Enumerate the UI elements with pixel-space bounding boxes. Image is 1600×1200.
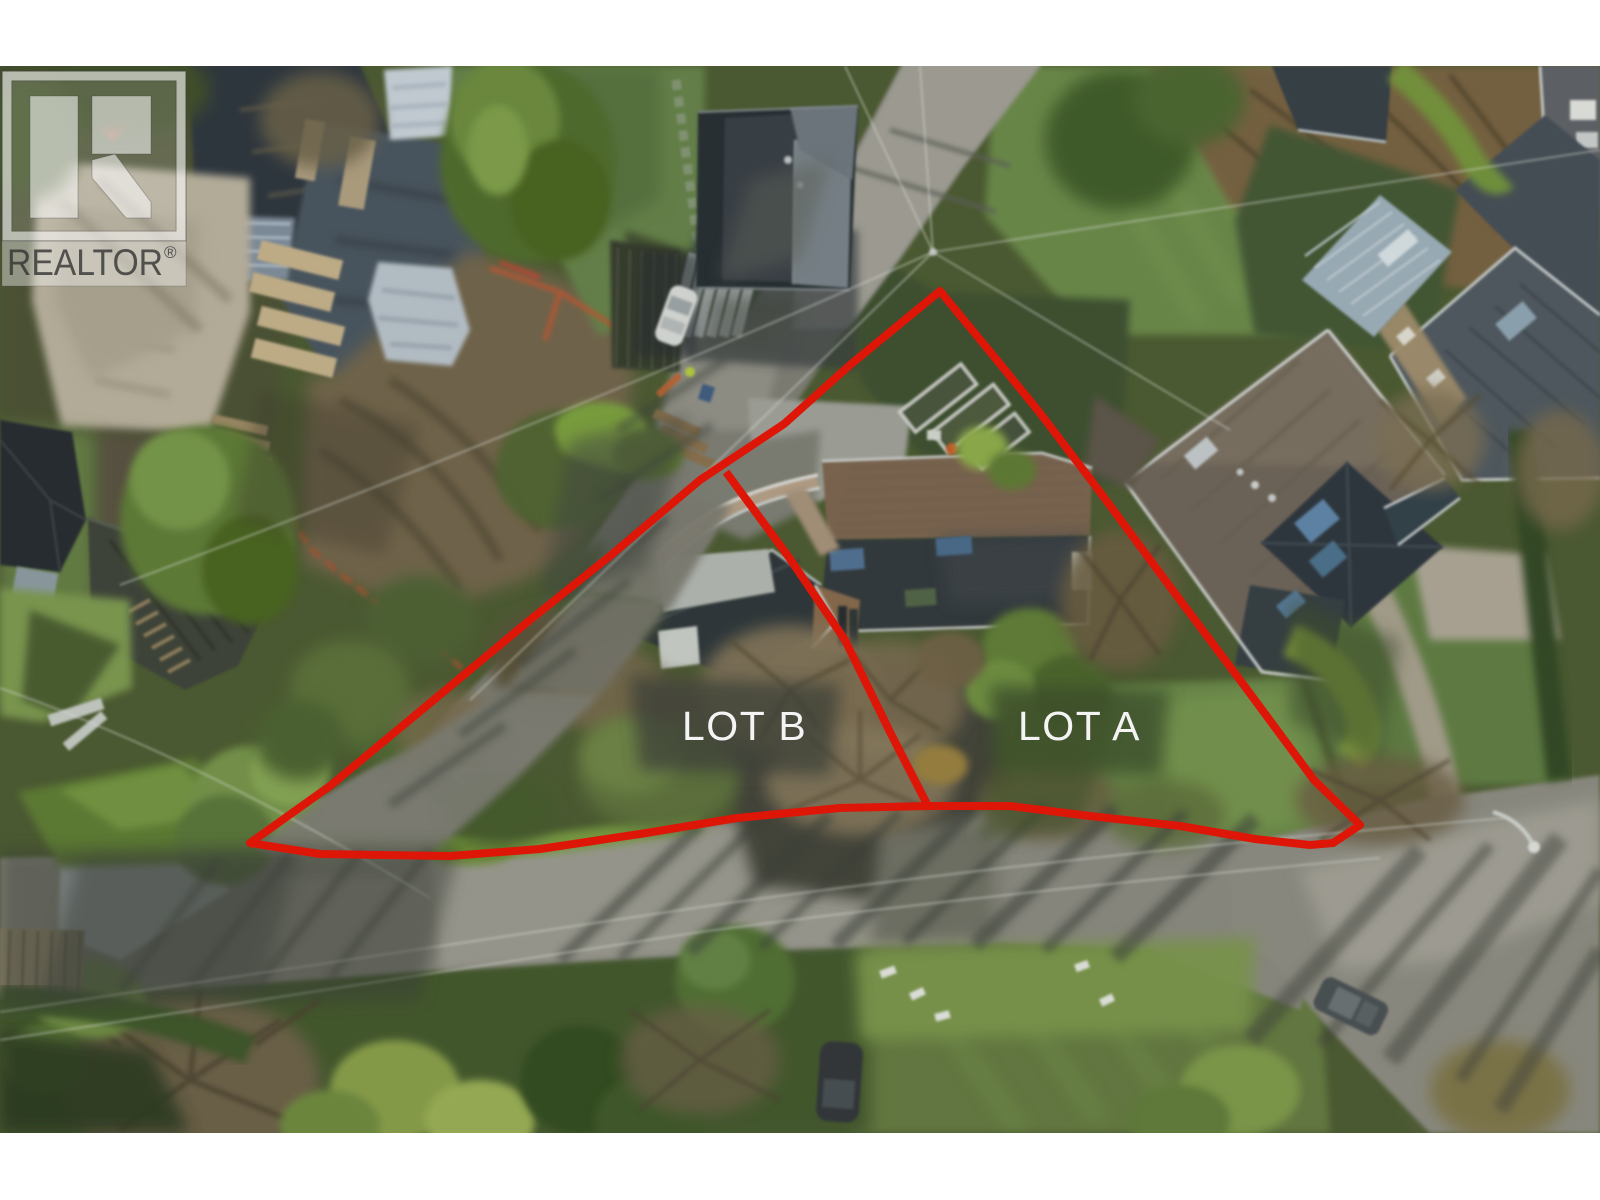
svg-text:LOT B: LOT B	[682, 703, 807, 749]
svg-text:LOT A: LOT A	[1018, 703, 1141, 749]
svg-text:®: ®	[164, 243, 177, 262]
svg-text:REALTOR: REALTOR	[7, 242, 163, 283]
